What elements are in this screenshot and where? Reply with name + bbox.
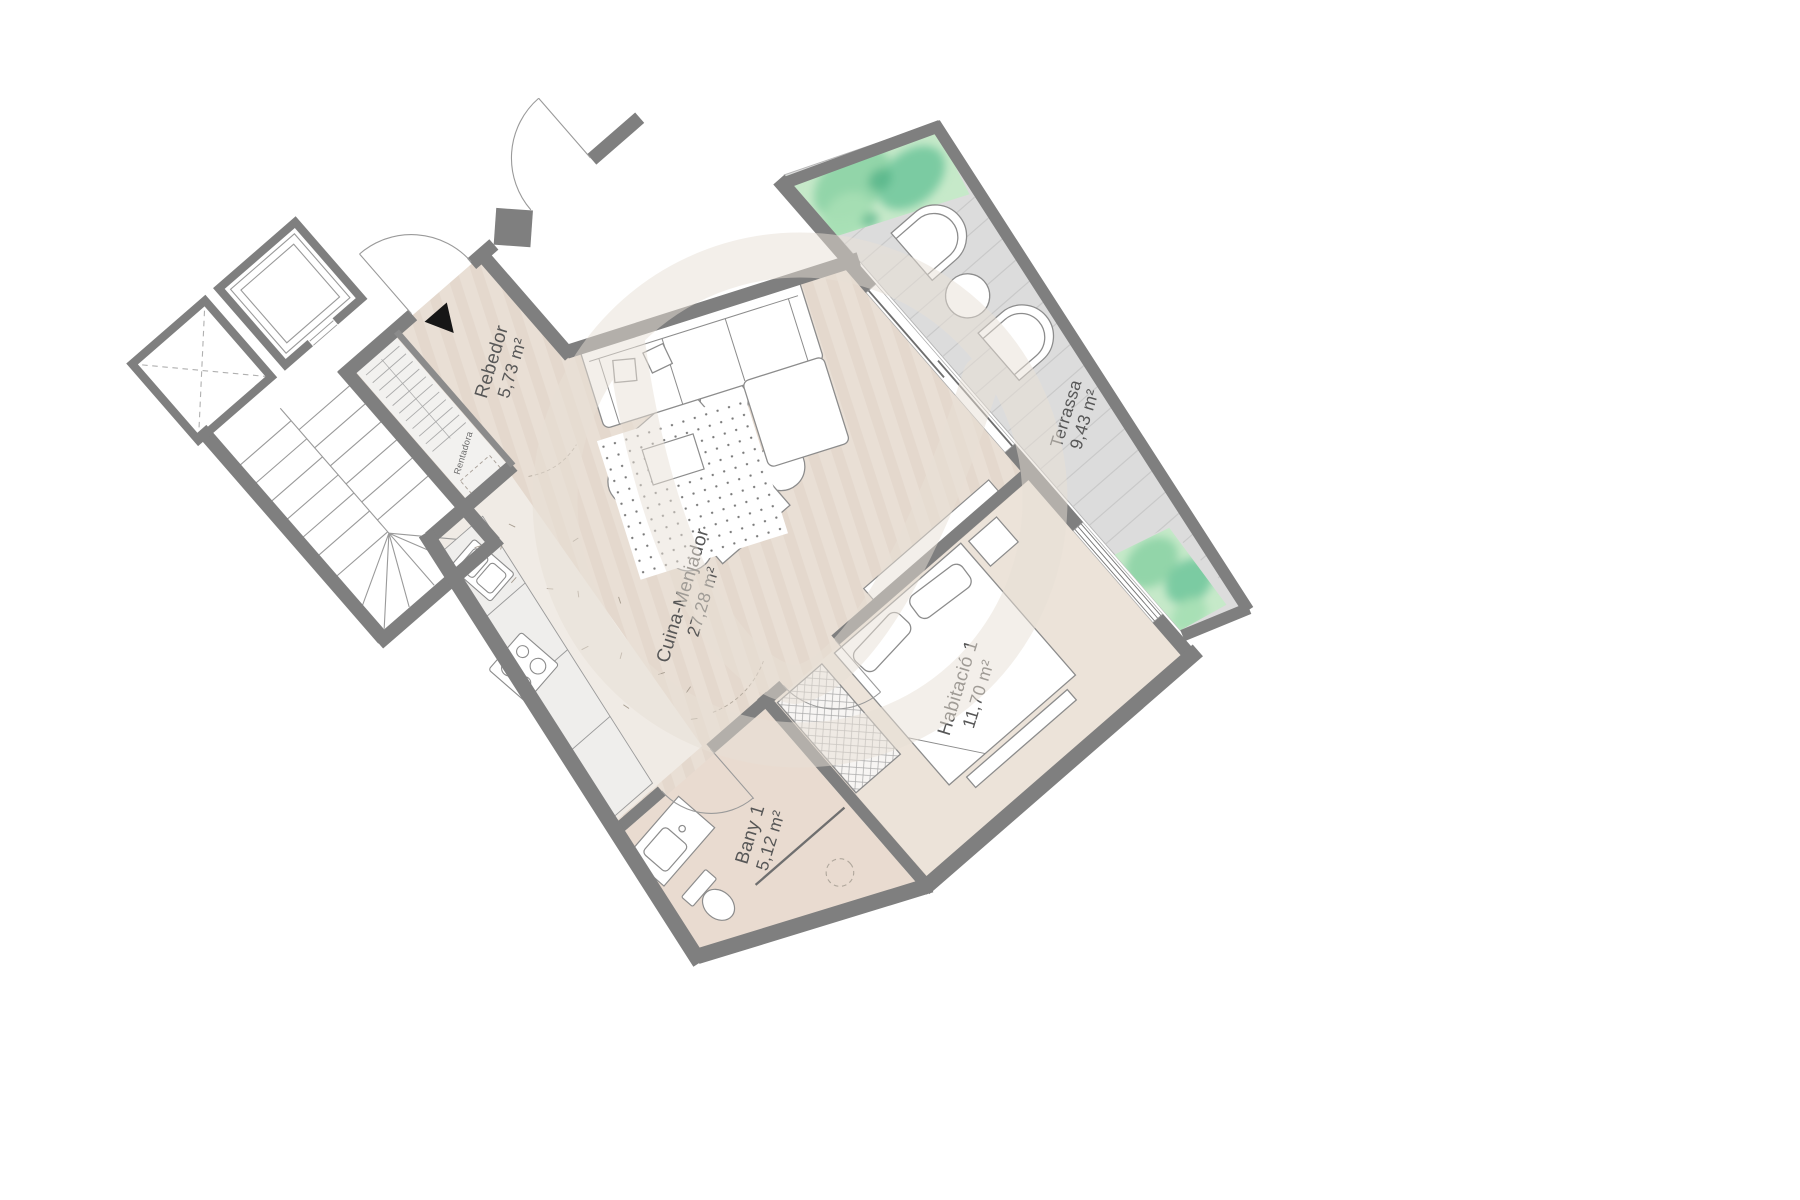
floorplan-page: Rebedor 5,73 m² Rentadora Cuina-Menjador… — [0, 0, 1800, 1200]
floor-texture — [0, 0, 1506, 1200]
landing-pillar — [494, 208, 533, 247]
rotated-plan: Rebedor 5,73 m² Rentadora Cuina-Menjador… — [0, 0, 1506, 1200]
elevator — [231, 234, 350, 353]
neighbor-door-arc — [479, 98, 591, 210]
floorplan-canvas: Rebedor 5,73 m² Rentadora Cuina-Menjador… — [0, 0, 1800, 1200]
